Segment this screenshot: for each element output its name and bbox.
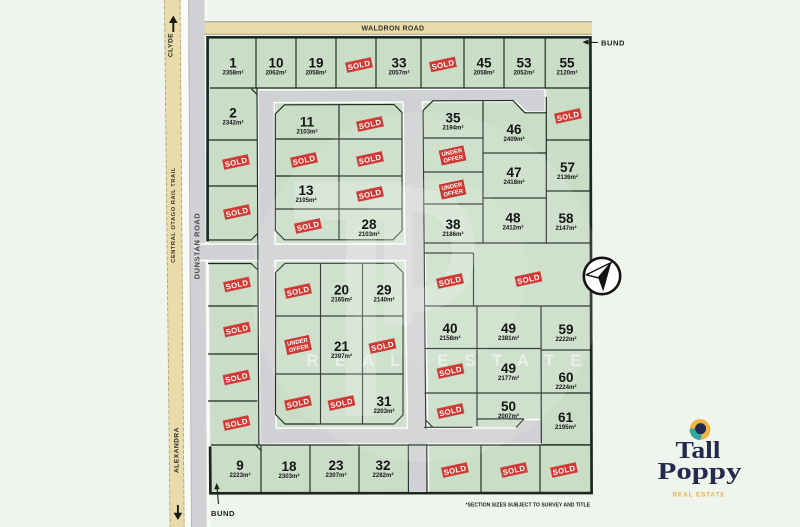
svg-text:57: 57 — [560, 160, 575, 175]
svg-text:50: 50 — [501, 399, 516, 414]
svg-text:48: 48 — [505, 211, 521, 226]
svg-text:2194m²: 2194m² — [442, 124, 463, 131]
svg-text:2052m²: 2052m² — [513, 69, 534, 76]
svg-text:11: 11 — [300, 115, 315, 130]
svg-text:2303m²: 2303m² — [278, 473, 299, 480]
svg-text:CENTRAL OTAGO RAIL TRAIL: CENTRAL OTAGO RAIL TRAIL — [171, 167, 177, 263]
svg-text:20: 20 — [334, 283, 349, 298]
svg-text:18: 18 — [281, 459, 297, 474]
svg-text:21: 21 — [334, 339, 350, 354]
svg-text:2409m²: 2409m² — [503, 136, 524, 143]
svg-text:45: 45 — [476, 56, 492, 71]
svg-text:28: 28 — [361, 217, 377, 232]
svg-text:38: 38 — [445, 217, 461, 232]
svg-text:33: 33 — [391, 56, 407, 71]
svg-text:10: 10 — [268, 56, 283, 71]
svg-text:2342m²: 2342m² — [222, 119, 243, 126]
svg-text:1: 1 — [229, 56, 237, 71]
svg-text:53: 53 — [516, 56, 532, 71]
svg-text:2136m²: 2136m² — [557, 174, 578, 181]
svg-text:2186m²: 2186m² — [442, 231, 463, 238]
svg-text:2057m²: 2057m² — [388, 69, 409, 76]
svg-text:2307m²: 2307m² — [325, 472, 346, 479]
svg-text:2058m²: 2058m² — [473, 69, 494, 76]
svg-text:2223m²: 2223m² — [229, 472, 250, 479]
svg-text:60: 60 — [558, 370, 573, 385]
svg-text:ALEXANDRA: ALEXANDRA — [174, 427, 181, 473]
svg-text:9: 9 — [236, 458, 244, 473]
svg-text:2381m²: 2381m² — [498, 335, 519, 342]
svg-text:49: 49 — [501, 361, 516, 376]
svg-text:BUND: BUND — [211, 509, 235, 518]
svg-text:DUNSTAN ROAD: DUNSTAN ROAD — [193, 213, 202, 280]
svg-text:BUND: BUND — [601, 39, 625, 48]
svg-text:2177m²: 2177m² — [498, 375, 519, 382]
svg-text:19: 19 — [308, 56, 323, 71]
svg-text:2058m²: 2058m² — [305, 69, 326, 76]
svg-text:2222m²: 2222m² — [555, 336, 576, 343]
svg-text:Poppy: Poppy — [658, 458, 743, 485]
svg-text:2412m²: 2412m² — [502, 224, 523, 231]
svg-text:2224m²: 2224m² — [555, 384, 576, 391]
svg-text:23: 23 — [328, 458, 344, 473]
svg-text:59: 59 — [558, 322, 573, 337]
svg-text:29: 29 — [376, 283, 391, 298]
svg-text:2165m²: 2165m² — [331, 296, 352, 303]
svg-text:WALDRON ROAD: WALDRON ROAD — [362, 25, 425, 32]
svg-text:2103m²: 2103m² — [358, 231, 379, 238]
svg-text:49: 49 — [501, 321, 516, 336]
svg-text:58: 58 — [558, 211, 574, 226]
svg-text:2203m²: 2203m² — [373, 408, 394, 415]
svg-text:55: 55 — [559, 56, 575, 71]
svg-text:2120m²: 2120m² — [556, 69, 577, 76]
svg-text:2105m²: 2105m² — [295, 197, 316, 204]
svg-text:35: 35 — [445, 111, 461, 126]
svg-text:*SECTION SIZES SUBJECT TO SURV: *SECTION SIZES SUBJECT TO SURVEY AND TIT… — [466, 503, 591, 509]
svg-text:46: 46 — [506, 122, 522, 137]
svg-text:2007m²: 2007m² — [498, 413, 519, 420]
svg-text:61: 61 — [558, 410, 574, 425]
svg-text:CLYDE: CLYDE — [167, 33, 174, 57]
svg-text:2103m²: 2103m² — [296, 128, 317, 135]
svg-text:2358m²: 2358m² — [222, 69, 243, 76]
svg-text:31: 31 — [376, 394, 392, 409]
svg-text:40: 40 — [442, 321, 457, 336]
svg-text:2062m²: 2062m² — [265, 69, 286, 76]
svg-text:2147m²: 2147m² — [555, 225, 576, 232]
svg-text:13: 13 — [298, 183, 314, 198]
svg-text:2397m²: 2397m² — [331, 353, 352, 360]
svg-text:2: 2 — [229, 106, 237, 121]
svg-text:2282m²: 2282m² — [372, 472, 393, 479]
svg-text:2158m²: 2158m² — [439, 335, 460, 342]
svg-text:47: 47 — [506, 165, 521, 180]
svg-text:2195m²: 2195m² — [555, 424, 576, 431]
svg-text:REAL ESTATE: REAL ESTATE — [673, 492, 726, 499]
svg-text:2140m²: 2140m² — [373, 296, 394, 303]
svg-text:2418m²: 2418m² — [503, 179, 524, 186]
svg-text:32: 32 — [375, 458, 390, 473]
